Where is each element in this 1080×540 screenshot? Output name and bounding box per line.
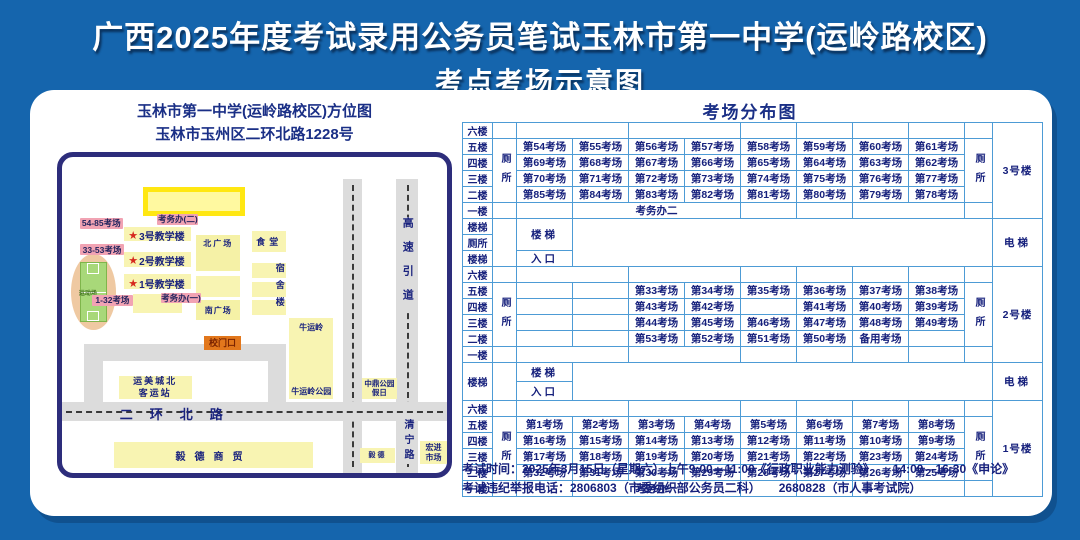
exam-room-cell: 第82考场: [685, 187, 741, 203]
bus-station-label-1: 运美城北: [133, 376, 177, 387]
exam-room-cell: 第42考场: [685, 299, 741, 315]
building-label-cell: 3号楼: [993, 123, 1043, 219]
rooms-54-85-callout: 54-85考场: [80, 218, 123, 229]
stair-cell: 楼梯: [517, 219, 573, 251]
exam-room-cell: 第78考场: [909, 187, 965, 203]
zhongding-label-2: 假日: [372, 388, 387, 398]
canteen: 食堂: [252, 231, 286, 252]
exam-room-cell: 第70考场: [517, 171, 573, 187]
empty-cell: [493, 123, 517, 139]
floor-label-cell: 六楼: [463, 267, 493, 283]
exam-room-cell: 第74考场: [741, 171, 797, 187]
exam-room-cell: 第85考场: [517, 187, 573, 203]
floor-label-cell: 五楼: [463, 139, 493, 155]
teaching-building-1-label: 1号教学楼: [139, 276, 185, 291]
toilet-cell: 厕所: [493, 139, 517, 203]
exam-room-cell: 第77考场: [909, 171, 965, 187]
empty-cell: [853, 123, 909, 139]
empty-cell: [909, 347, 965, 363]
empty-cell: [517, 299, 573, 315]
exam-room-cell: 第56考场: [629, 139, 685, 155]
exam-room-cell: 第38考场: [909, 283, 965, 299]
exam-room-cell: 第41考场: [797, 299, 853, 315]
yide-small: 毅德: [360, 448, 394, 463]
floor-label-cell: 一楼: [463, 203, 493, 219]
empty-cell: [909, 267, 965, 283]
admin-office-2-callout: 考务办(二): [157, 214, 198, 225]
exam-room-cell: 备用考场: [853, 331, 909, 347]
footer-notes: 考试时间：2025年3月15日（星期六）上午9:00—11:00《行政职业能力测…: [462, 460, 1048, 497]
empty-cell: [853, 347, 909, 363]
exam-room-cell: 第69考场: [517, 155, 573, 171]
floor-label-cell: 一楼: [463, 347, 493, 363]
empty-cell: [517, 203, 573, 219]
exam-room-cell: 第53考场: [629, 331, 685, 347]
school-gate-label: 校门口: [209, 336, 236, 349]
empty-cell: [493, 219, 517, 267]
exam-room-cell: 第34考场: [685, 283, 741, 299]
empty-cell: [573, 331, 629, 347]
exam-room-cell: 第1考场: [517, 417, 573, 433]
empty-cell: [853, 203, 965, 219]
empty-cell: [573, 315, 629, 331]
floor-label-cell: 二楼: [463, 187, 493, 203]
exam-room-cell: 第72考场: [629, 171, 685, 187]
niuyunling-label: 牛运岭: [289, 322, 333, 333]
floor-label-cell: 五楼: [463, 417, 493, 433]
exam-room-cell: 第6考场: [797, 417, 853, 433]
empty-cell: [965, 401, 993, 417]
hongjin-label-2: 市场: [426, 453, 442, 463]
erhuan-road-label: 二环北路: [120, 404, 240, 423]
exam-room-cell: 第16考场: [517, 433, 573, 449]
yide-small-text: 毅德: [369, 450, 387, 460]
empty-cell: [965, 123, 993, 139]
floor-label-cell: 三楼: [463, 315, 493, 331]
zhongding-park: 中鼎公园 假日: [362, 378, 396, 399]
empty-cell: [909, 123, 965, 139]
hongjin-market: 宏进 市场: [420, 441, 447, 464]
entry-cell: 入口: [517, 251, 573, 267]
floor-label-cell: 五楼: [463, 283, 493, 299]
stair-cell: 楼梯: [517, 363, 573, 382]
south-plaza-label: 南广场: [205, 305, 232, 316]
elevator-cell: 电梯: [993, 363, 1043, 401]
dormitory-label: 宿舍楼: [274, 263, 287, 314]
empty-cell: [517, 401, 629, 417]
mid-building: [196, 276, 240, 297]
floor-label-cell: 四楼: [463, 433, 493, 449]
map-title: 玉林市第一中学(运岭路校区)方位图 玉林市玉州区二环北路1228号: [57, 100, 452, 147]
school-gate: 校门口: [204, 336, 240, 351]
exam-room-cell: 第33考场: [629, 283, 685, 299]
distribution-table-wrap: 六楼3号楼五楼厕所第54考场第55考场第56考场第57考场第58考场第59考场第…: [462, 122, 1043, 497]
exam-room-cell: 第8考场: [909, 417, 965, 433]
entry-cell: 入口: [517, 382, 573, 401]
exam-room-cell: 第62考场: [909, 155, 965, 171]
exam-room-cell: 第65考场: [741, 155, 797, 171]
empty-cell: [493, 267, 517, 283]
qingning-road-label: 清宁路: [400, 419, 415, 464]
exam-room-cell: 第71考场: [573, 171, 629, 187]
exam-room-cell: 第37考场: [853, 283, 909, 299]
hongjin-label-1: 宏进: [426, 443, 442, 453]
exam-room-cell: 第46考场: [741, 315, 797, 331]
zhongding-label-1: 中鼎公园: [364, 379, 394, 389]
elevator-cell: 电梯: [993, 219, 1043, 267]
empty-cell: [797, 267, 853, 283]
south-plaza: 南广场: [196, 300, 240, 319]
office-cell: 考务办二: [573, 203, 741, 219]
empty-cell: [629, 267, 741, 283]
content-card: 玉林市第一中学(运岭路校区)方位图 玉林市玉州区二环北路1228号 北广场 食堂…: [30, 90, 1052, 516]
exam-room-cell: 第75考场: [797, 171, 853, 187]
empty-cell: [853, 267, 909, 283]
teaching-building-2: ★ 2号教学楼: [128, 253, 184, 268]
star-icon: ★: [128, 229, 138, 242]
empty-cell: [741, 123, 797, 139]
empty-cell: [741, 401, 797, 417]
empty-cell: [741, 203, 797, 219]
exam-room-cell: 第47考场: [797, 315, 853, 331]
exam-room-cell: 第73考场: [685, 171, 741, 187]
north-plaza-label: 北广场: [203, 238, 233, 249]
exam-room-cell: 第12考场: [741, 433, 797, 449]
expressway-label: 高速引道: [399, 217, 415, 313]
floor-label-cell: 三楼: [463, 171, 493, 187]
exam-room-cell: 第48考场: [853, 315, 909, 331]
empty-cell: [573, 219, 993, 267]
empty-cell: [517, 267, 629, 283]
exam-room-cell: 第68考场: [573, 155, 629, 171]
floor-label-cell: 六楼: [463, 401, 493, 417]
floor-label-cell: 二楼: [463, 331, 493, 347]
map-title-line1: 玉林市第一中学(运岭路校区)方位图: [57, 100, 452, 123]
empty-cell: [853, 401, 909, 417]
exam-room-cell: 第50考场: [797, 331, 853, 347]
empty-cell: [517, 331, 573, 347]
exam-room-cell: 第35考场: [741, 283, 797, 299]
exam-room-cell: 第15考场: [573, 433, 629, 449]
exam-room-cell: 第52考场: [685, 331, 741, 347]
niuyunling-park-text: 牛运岭公园: [291, 386, 331, 397]
exam-room-cell: 第58考场: [741, 139, 797, 155]
building-label-cell: 2号楼: [993, 267, 1043, 363]
star-icon: ★: [128, 277, 138, 290]
distribution-title: 考场分布图: [462, 98, 1038, 123]
erhuan-road-text: 二环北路: [120, 404, 240, 423]
north-plaza: 北广场: [196, 235, 240, 271]
distribution-table: 六楼3号楼五楼厕所第54考场第55考场第56考场第57考场第58考场第59考场第…: [462, 122, 1043, 497]
empty-cell: [741, 267, 797, 283]
exam-room-cell: 第5考场: [741, 417, 797, 433]
empty-cell: [909, 331, 965, 347]
empty-cell: [909, 401, 965, 417]
empty-cell: [573, 299, 629, 315]
exam-room-cell: 第76考场: [853, 171, 909, 187]
stair-label-cell: 楼梯: [463, 363, 493, 401]
floor-label-cell: 四楼: [463, 299, 493, 315]
star-icon: ★: [128, 254, 138, 267]
empty-cell: [493, 363, 517, 401]
exam-room-cell: 第83考场: [629, 187, 685, 203]
floor-label-cell: 六楼: [463, 123, 493, 139]
toilet-cell: 厕所: [965, 139, 993, 203]
bus-station: 运美城北 客运站: [119, 376, 192, 399]
empty-cell: [517, 123, 629, 139]
empty-cell: [965, 203, 993, 219]
campus-road-west-stub: [84, 356, 102, 403]
yide-trade-text: 毅德商贸: [175, 448, 251, 463]
exam-room-cell: 第59考场: [797, 139, 853, 155]
exam-room-cell: 第57考场: [685, 139, 741, 155]
exam-room-cell: 第64考场: [797, 155, 853, 171]
floor-label-cell: 四楼: [463, 155, 493, 171]
exam-room-cell: 第3考场: [629, 417, 685, 433]
exam-room-cell: 第40考场: [853, 299, 909, 315]
empty-cell: [797, 401, 853, 417]
empty-cell: [797, 347, 853, 363]
exam-room-cell: 第49考场: [909, 315, 965, 331]
exam-room-cell: 第14考场: [629, 433, 685, 449]
exam-room-cell: 第81考场: [741, 187, 797, 203]
empty-cell: [965, 267, 993, 283]
campus-map: 北广场 食堂 宿舍楼 南广场 运动场 ★ 3号教学楼 ★: [57, 152, 452, 478]
road-vertical-west: [343, 179, 363, 473]
page-title-line1: 广西2025年度考试录用公务员笔试玉林市第一中学(运岭路校区): [0, 12, 1080, 57]
sports-field: 运动场: [71, 254, 116, 330]
exam-room-cell: 第10考场: [853, 433, 909, 449]
exam-room-cell: 第63考场: [853, 155, 909, 171]
empty-cell: [493, 401, 517, 417]
exam-room-cell: 第66考场: [685, 155, 741, 171]
teaching-building-3-label: 3号教学楼: [139, 228, 185, 243]
report-phone-note: 考试违纪举报电话：2806803（市委组织部公务员二科） 2680828（市人事…: [462, 479, 1048, 498]
exam-time-note: 考试时间：2025年3月15日（星期六）上午9:00—11:00《行政职业能力测…: [462, 460, 1048, 479]
exam-room-cell: 第45考场: [685, 315, 741, 331]
exam-room-cell: 第7考场: [853, 417, 909, 433]
exam-room-cell: 第51考场: [741, 331, 797, 347]
poster: 广西2025年度考试录用公务员笔试玉林市第一中学(运岭路校区) 考点考场示意图 …: [0, 0, 1080, 540]
exam-room-cell: 第67考场: [629, 155, 685, 171]
empty-cell: [965, 347, 993, 363]
empty-cell: [517, 283, 573, 299]
exam-room-cell: 第13考场: [685, 433, 741, 449]
rooms-1-32-callout: 1-32考场: [92, 295, 133, 306]
exam-room-cell: 第61考场: [909, 139, 965, 155]
empty-cell: [741, 299, 797, 315]
exam-room-cell: 第84考场: [573, 187, 629, 203]
map-title-line2: 玉林市玉州区二环北路1228号: [57, 123, 452, 146]
campus-road: [84, 344, 286, 361]
empty-cell: [629, 123, 741, 139]
teaching-building-3: ★ 3号教学楼: [128, 228, 184, 243]
niuyunling-text: 牛运岭: [299, 322, 323, 333]
empty-cell: [493, 347, 517, 363]
empty-cell: [797, 203, 853, 219]
toilet-cell: 厕所: [965, 283, 993, 347]
empty-cell: [573, 363, 993, 401]
admin-office-1-callout: 考务办(一): [161, 293, 202, 304]
rooms-33-53-callout: 33-53考场: [80, 244, 123, 255]
exam-room-cell: 第2考场: [573, 417, 629, 433]
stair-label-cell: 楼梯: [463, 219, 493, 235]
exam-room-cell: 第79考场: [853, 187, 909, 203]
exam-room-cell: 第54考场: [517, 139, 573, 155]
highlighted-building: [143, 187, 245, 216]
exam-room-cell: 第9考场: [909, 433, 965, 449]
exam-room-cell: 第44考场: [629, 315, 685, 331]
yide-trade: 毅德商贸: [114, 442, 314, 468]
empty-cell: [629, 347, 741, 363]
page-title: 广西2025年度考试录用公务员笔试玉林市第一中学(运岭路校区) 考点考场示意图: [0, 0, 1080, 101]
canteen-label: 食堂: [256, 235, 282, 248]
empty-cell: [741, 347, 797, 363]
empty-cell: [629, 401, 741, 417]
niuyunling-park-label: 牛运岭公园: [280, 386, 344, 397]
empty-cell: [573, 283, 629, 299]
toilet-cell: 厕所: [493, 283, 517, 347]
exam-room-cell: 第80考场: [797, 187, 853, 203]
exam-room-cell: 第43考场: [629, 299, 685, 315]
exam-room-cell: 第4考场: [685, 417, 741, 433]
stair-label-cell: 楼梯: [463, 251, 493, 267]
exam-room-cell: 第11考场: [797, 433, 853, 449]
exam-room-cell: 第60考场: [853, 139, 909, 155]
bus-station-label-2: 客运站: [139, 388, 172, 399]
teaching-building-1: ★ 1号教学楼: [128, 276, 184, 291]
exam-room-cell: 第36考场: [797, 283, 853, 299]
exam-room-cell: 第39考场: [909, 299, 965, 315]
empty-cell: [797, 123, 853, 139]
exam-room-cell: 第55考场: [573, 139, 629, 155]
teaching-building-2-label: 2号教学楼: [139, 253, 185, 268]
toilet-label-cell: 厕所: [463, 235, 493, 251]
empty-cell: [517, 315, 573, 331]
empty-cell: [493, 203, 517, 219]
empty-cell: [517, 347, 629, 363]
